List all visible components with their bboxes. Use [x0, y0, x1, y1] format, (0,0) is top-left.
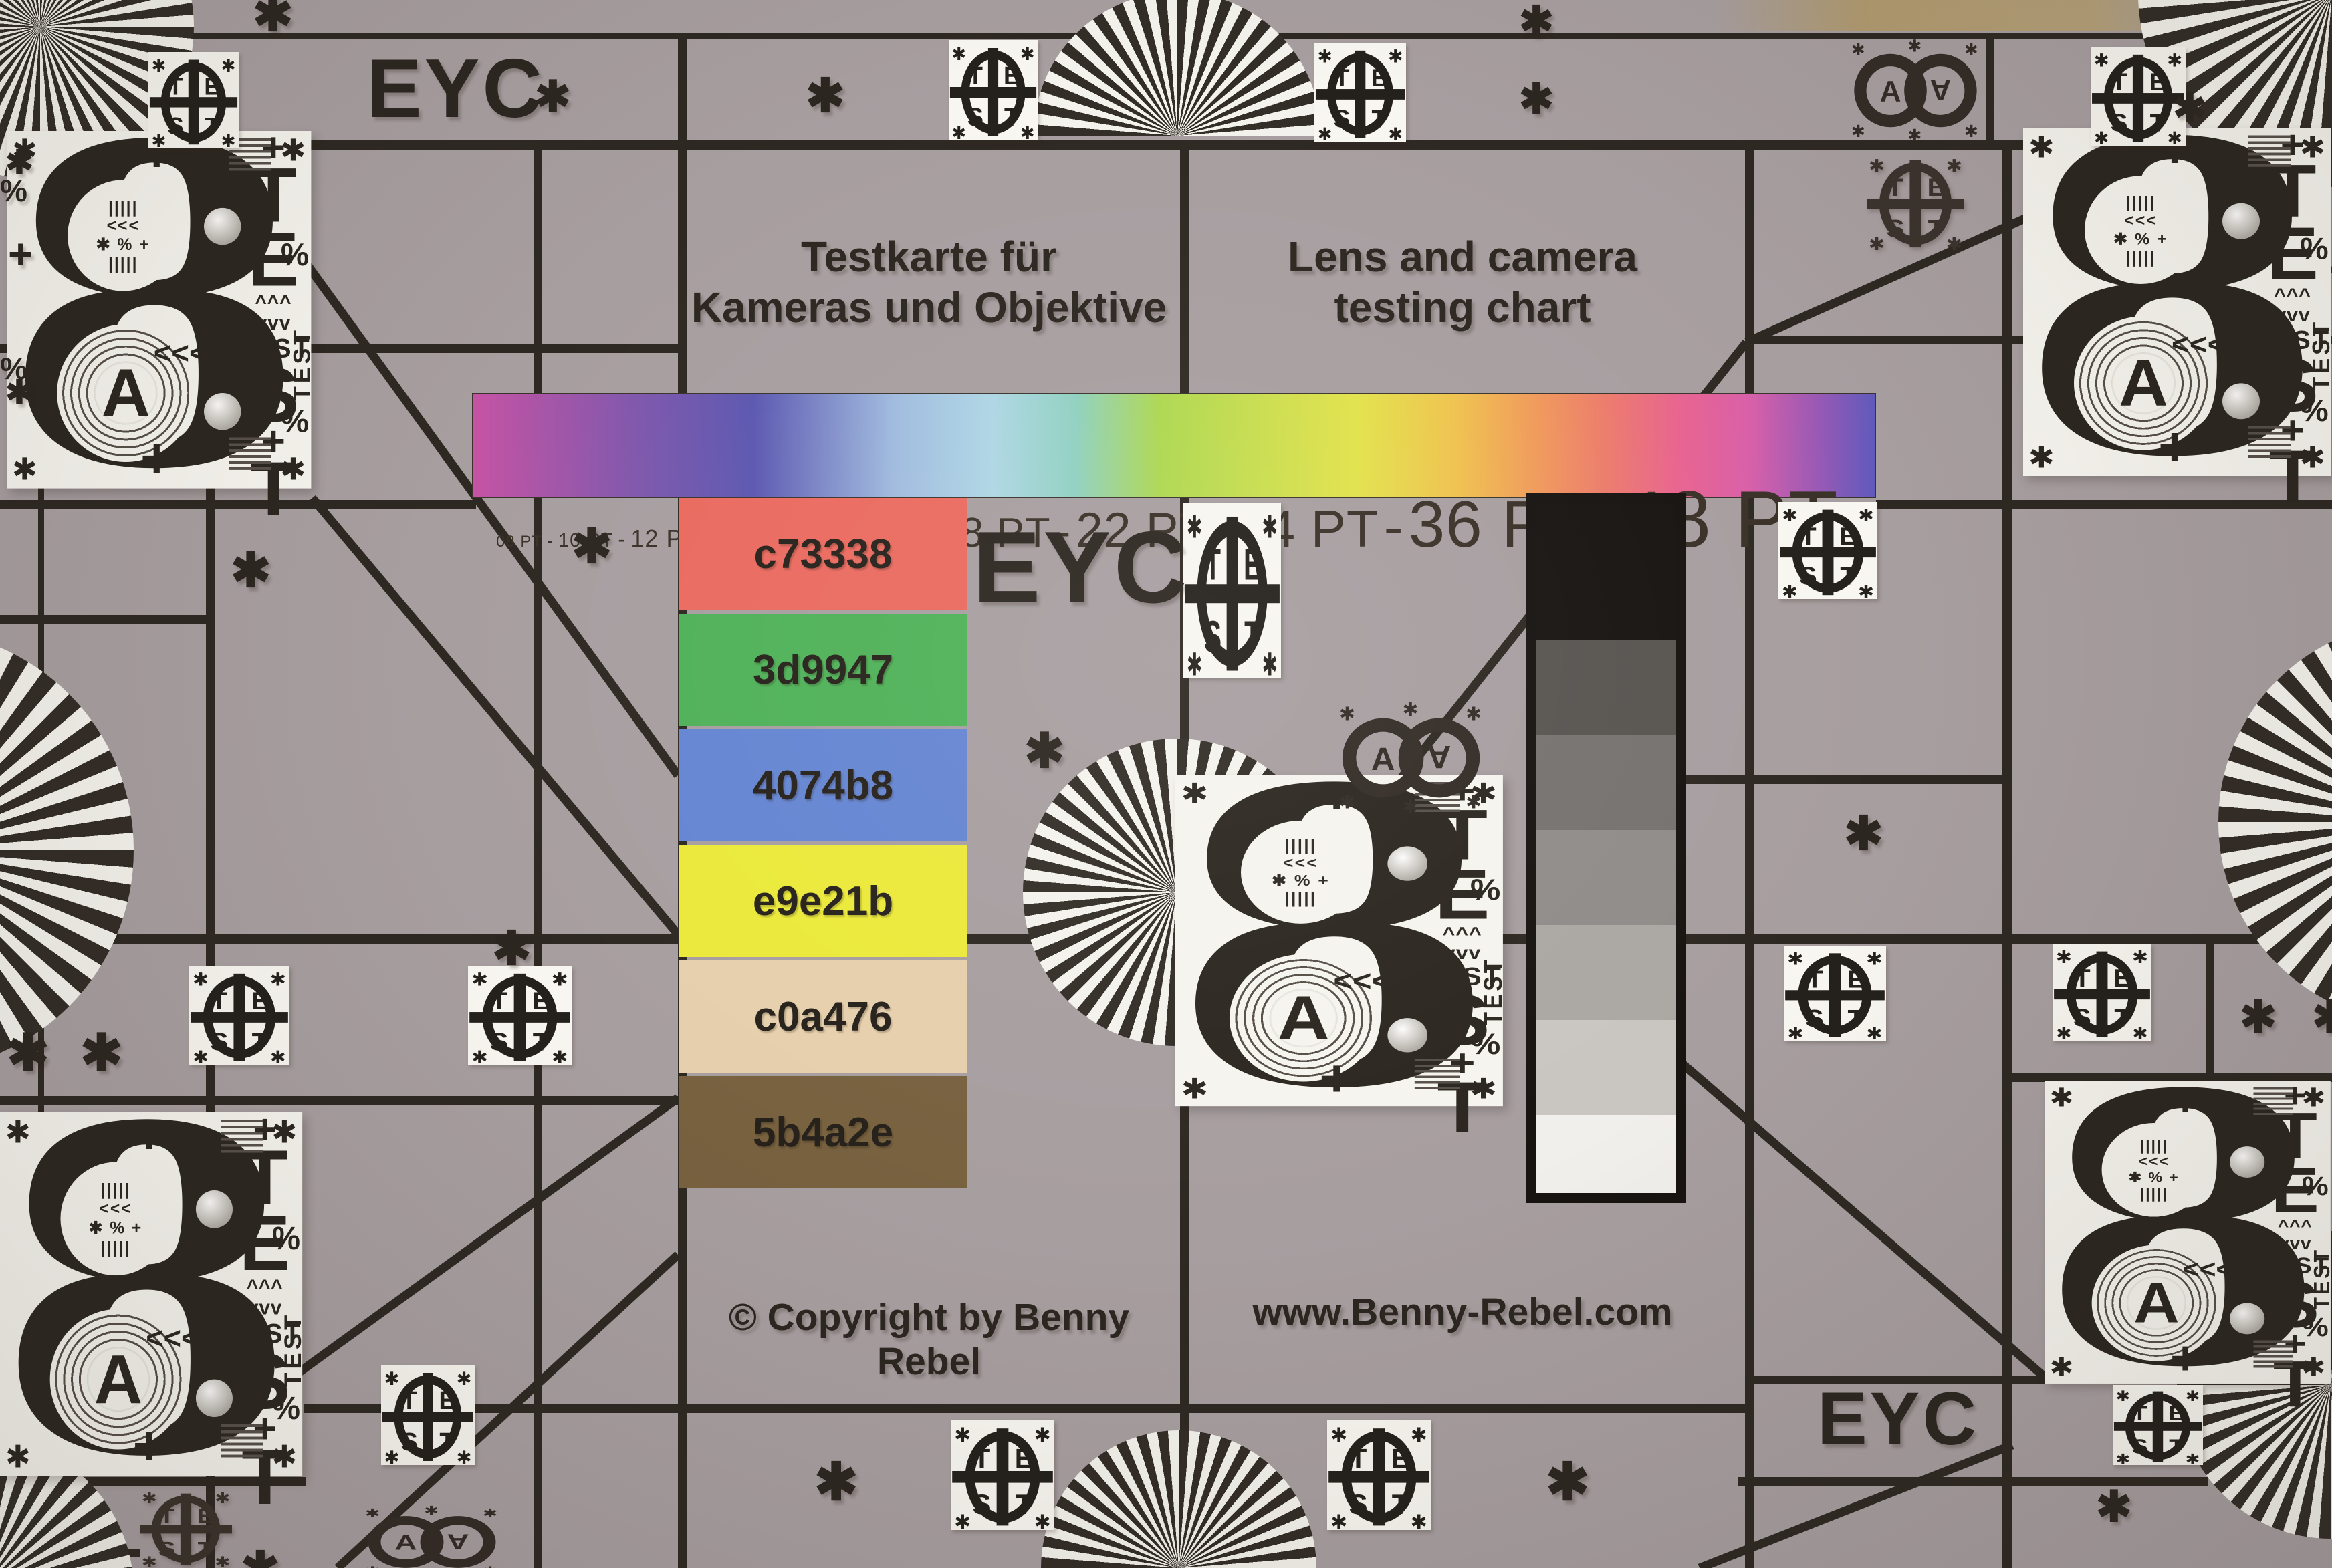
bar-pattern: [1415, 1059, 1460, 1089]
test-letter: S: [1886, 215, 1904, 243]
test-circle-marker: ✱ ✱ ✱ ✱ T E S T: [2091, 47, 2186, 146]
title-english-line2: testing chart: [1334, 283, 1591, 332]
bar-pattern: [229, 436, 271, 470]
asterisk-icon: ✱: [193, 1047, 209, 1065]
lens-test-chart-photo: 08 PT-10 PT-12 PT-14 PT-16 PT-18 PT-22 P…: [0, 0, 2332, 1568]
bar-pattern: [221, 1119, 263, 1152]
test-letter: S: [167, 112, 183, 140]
asterisk-icon: ✱: [951, 43, 965, 64]
asterisk-icon: ✱: [572, 523, 612, 571]
asterisk-icon: ✱: [231, 547, 271, 595]
eight-double-a-graphic: A A ✱ ✱ ✱ ✱ ✱ ✱: [1851, 39, 1979, 142]
asterisk-icon: ✱: [142, 1491, 157, 1507]
asterisk-icon: ✱: [2186, 1388, 2200, 1404]
test-letter: T: [1205, 540, 1221, 590]
test-circle-graphic: ✱ ✱ ✱ ✱ T E S T: [1865, 152, 1966, 251]
eight-double-a-graphic: A A ✱ ✱ ✱ ✱ ✱ ✱: [364, 1505, 498, 1568]
font-size-label: 08 PT: [496, 533, 542, 551]
asterisk-icon: ✱: [1020, 43, 1034, 64]
plus-icon: +: [2170, 1076, 2201, 1123]
color-patch-c73338: c73338: [679, 498, 967, 610]
asterisk-icon: ✱: [1330, 1511, 1347, 1530]
plus-icon: +: [2158, 419, 2191, 473]
sphere-detail: [2230, 1146, 2264, 1178]
grid-line-horizontal: [1681, 775, 2002, 784]
detail-bars: |||||: [2140, 1138, 2168, 1154]
asterisk-icon: ✱: [1782, 505, 1798, 525]
test-letter: T: [1806, 966, 1823, 993]
eight-test-card: ✱ ✱ ✱ ✱ 8 ||||| <<< ✱ % + ||||| A + T E …: [1175, 775, 1503, 1106]
test-letter: S: [1204, 612, 1221, 662]
title-english: Lens and camera testing chart: [1180, 231, 1745, 333]
asterisk-icon: ✱: [1519, 1, 1554, 43]
chevrons-left: <<<: [146, 1323, 199, 1353]
grayscale-step: [1536, 1115, 1676, 1193]
bar-pattern: [2253, 1087, 2293, 1115]
asterisk-icon: ✱: [1318, 124, 1332, 142]
a-letter: A: [2106, 347, 2181, 419]
grid-line-diagonal: [304, 261, 678, 775]
sphere-detail: [2222, 203, 2260, 239]
grid-line-vertical: [534, 140, 542, 1568]
test-letter: T: [1016, 1488, 1033, 1520]
test-letter: T: [973, 1443, 991, 1474]
percent-icon: %: [2302, 1314, 2329, 1341]
asterisk-icon: ✱: [1964, 41, 1978, 59]
asterisk-icon: ✱: [1844, 810, 1883, 857]
color-patch-4074b8: 4074b8: [679, 729, 967, 841]
asterisk-icon: ✱: [1787, 949, 1804, 968]
asterisk-icon: ✱: [384, 1448, 400, 1465]
test-circle-graphic: ✱ ✱ ✱ ✱ T E S T: [189, 966, 289, 1065]
color-patch-e9e21b: e9e21b: [679, 845, 967, 957]
asterisk-icon: ✱: [1388, 47, 1403, 67]
test-circle-marker: ✱ ✱ ✱ ✱ T E S T: [1314, 43, 1406, 142]
test-letter: S: [967, 102, 983, 131]
test-letter: S: [972, 1488, 991, 1520]
asterisk-icon: ✱: [471, 1047, 488, 1065]
test-letter: T: [1334, 63, 1350, 92]
test-letter: T: [1800, 523, 1817, 550]
test-circle-marker: ✱ ✱ ✱ ✱ T E S T: [1183, 503, 1281, 678]
resolution-detail-circle: ||||| <<< ✱ % + |||||: [2102, 1123, 2206, 1217]
asterisk-icon: ✱: [1908, 39, 1922, 55]
resolution-detail-circle: ||||| <<< ✱ % + |||||: [1241, 821, 1361, 924]
test-letter: S: [1334, 104, 1351, 132]
asterisk-icon: ✱: [1858, 505, 1874, 525]
eight-test-card: ✱ ✱ ✱ ✱ 8 ||||| <<< ✱ % + ||||| A + T E …: [2045, 1081, 2331, 1384]
test-letter: T: [211, 988, 228, 1015]
asterisk-icon: ✱: [2094, 128, 2109, 146]
test-circle-marker: ✱ ✱ ✱ ✱ T E S T: [468, 966, 572, 1065]
asterisk-icon: ✱: [1024, 727, 1064, 775]
test-letter: E: [1391, 1443, 1410, 1474]
a-letter: A: [1427, 739, 1451, 774]
asterisk-icon: ✱: [1034, 1511, 1051, 1530]
test-letter: T: [1244, 612, 1260, 662]
website-text: www.Benny-Rebel.com: [1180, 1290, 1745, 1334]
plus-icon: +: [8, 233, 33, 275]
test-circle-marker: ✱ ✱ ✱ ✱ T E S T: [1778, 502, 1877, 599]
asterisk-icon: ✱: [457, 1369, 472, 1389]
asterisk-icon: ✱: [1869, 234, 1885, 251]
asterisk-icon: ✱: [1330, 1424, 1347, 1446]
detail-chevrons: <<<: [107, 217, 140, 235]
detail-glyphs: ✱ % +: [2129, 1170, 2180, 1186]
detail-bars: |||||: [101, 1180, 130, 1199]
resolution-detail-circle: ||||| <<< ✱ % + |||||: [60, 1162, 170, 1276]
asterisk-icon: ✱: [2132, 1023, 2148, 1041]
asterisk-icon: ✱: [2312, 995, 2332, 1039]
grid-line-horizontal: [0, 140, 2332, 150]
test-tile-center: ✱ ✱ ✱ ✱ 8 ||||| <<< ✱ % + ||||| A + T E …: [1175, 775, 1483, 1136]
test-circle-graphic: ✱ ✱ ✱ ✱ T E S T: [2053, 944, 2151, 1041]
test-circle-graphic: ✱ ✱ ✱ ✱ T E S T: [138, 1487, 233, 1568]
test-letter: T: [1392, 1488, 1409, 1520]
test-circle-graphic: ✱ ✱ ✱ ✱ T E S T: [949, 40, 1038, 140]
detail-bars: |||||: [108, 197, 138, 216]
asterisk-icon: ✱: [270, 1047, 286, 1065]
font-size-separator: -: [547, 531, 554, 551]
eight-test-card: ✱ ✱ ✱ ✱ 8 ||||| <<< ✱ % + ||||| A + T E …: [2023, 128, 2331, 476]
asterisk-icon: ✱: [1858, 581, 1874, 599]
asterisk-icon: ✱: [954, 1424, 971, 1446]
detail-bars: |||||: [2126, 249, 2156, 267]
color-patch-label: c73338: [754, 531, 893, 578]
a-letter: A: [394, 1531, 417, 1555]
test-letter: T: [1004, 102, 1019, 131]
asterisk-icon: ✱: [384, 1369, 400, 1389]
test-circle-marker: ✱ ✱ ✱ ✱ T E S T: [951, 1420, 1054, 1530]
percent-icon: %: [2302, 1173, 2329, 1200]
test-letter: T: [1887, 174, 1904, 202]
asterisk-icon: ✱: [193, 970, 209, 990]
test-letter: E: [1244, 540, 1261, 590]
asterisk-icon: ✱: [483, 1564, 497, 1568]
test-letter: E: [2168, 1403, 2184, 1425]
test-letter: T: [2150, 110, 2166, 137]
test-letter: T: [968, 61, 983, 90]
test-circle-marker: ✱ ✱ ✱ ✱ T E S T: [189, 966, 289, 1065]
asterisk-icon: ✱: [1318, 47, 1332, 67]
percent-icon: %: [281, 239, 309, 271]
asterisk-icon: ✱: [1546, 1456, 1589, 1508]
test-circle-marker: ✱ ✱ ✱ ✱ T E S T: [1865, 152, 1966, 251]
asterisk-icon: ✱: [2186, 1451, 2200, 1465]
asterisk-icon: ✱: [471, 969, 488, 989]
detail-glyphs: ✱ % +: [89, 1218, 142, 1238]
asterisk-icon: ✱: [492, 925, 532, 972]
color-patch-label: 5b4a2e: [753, 1109, 893, 1156]
grid-line-horizontal: [0, 615, 207, 624]
detail-bars: |||||: [1284, 890, 1316, 907]
asterisk-icon: ✱: [1262, 648, 1278, 678]
asterisk-icon: ✱: [1262, 510, 1278, 545]
detail-chevrons: <<<: [100, 1199, 132, 1218]
resolution-detail-circle: ||||| <<< ✱ % + |||||: [68, 180, 179, 291]
test-circle-graphic: ✱ ✱ ✱ ✱ T E S T: [1778, 502, 1877, 599]
test-letter: T: [1928, 215, 1945, 243]
eyc-label-middle: EYC: [973, 509, 1190, 626]
test-letter: T: [2114, 1005, 2131, 1032]
test-word-vertical: TEST: [2309, 319, 2332, 391]
asterisk-icon: ✱: [483, 1507, 497, 1520]
test-circle-graphic: ✱ ✱ ✱ ✱ T E S T: [951, 1420, 1054, 1530]
asterisk-icon: ✱: [1411, 1511, 1427, 1530]
chevrons-left: <<<: [1333, 966, 1391, 995]
test-letter: T: [2132, 1403, 2147, 1425]
resolution-detail-circle: ||||| <<< ✱ % + |||||: [2085, 176, 2197, 284]
test-circle-graphic: ✱ ✱ ✱ ✱ T E S T: [2113, 1385, 2203, 1465]
test-letter: T: [198, 1538, 214, 1561]
bar-pattern: [2253, 1340, 2293, 1368]
chevrons-left: <<<: [2172, 329, 2226, 358]
asterisk-icon: ✱: [241, 1545, 280, 1568]
test-letter: E: [1004, 61, 1020, 90]
detail-glyphs: ✱ % +: [1272, 872, 1330, 890]
test-circle-graphic: ✱ ✱ ✱ ✱ T E S T: [2091, 47, 2186, 146]
asterisk-icon: ✱: [1339, 704, 1355, 725]
test-circle-graphic: ✱ ✱ ✱ ✱ T E S T: [1183, 503, 1281, 678]
test-word-vertical: TEST: [281, 1312, 305, 1388]
test-letter: E: [1371, 63, 1387, 92]
asterisk-icon: ✱: [1787, 1024, 1804, 1041]
grid-line-vertical: [1745, 140, 1754, 1568]
asterisk-icon: ✱: [365, 1564, 380, 1568]
bar-pattern: [2248, 135, 2291, 167]
test-circle-marker: ✱ ✱ ✱ ✱ T E S T: [949, 40, 1038, 140]
detail-chevrons: <<<: [1283, 855, 1318, 872]
eight-double-a-cluster: A A ✱ ✱ ✱ ✱ ✱ ✱: [364, 1505, 498, 1568]
sphere-detail: [204, 208, 241, 245]
test-letter: S: [158, 1538, 176, 1561]
asterisk-icon: ✱: [2094, 51, 2109, 71]
percent-icon: %: [272, 1222, 300, 1255]
asterisk-icon: ✱: [1519, 79, 1554, 120]
asterisk-icon: ✱: [1466, 704, 1481, 725]
asterisk-icon: ✱: [2132, 947, 2148, 967]
asterisk-icon: ✱: [2116, 1388, 2131, 1404]
asterisk-icon: ✱: [2173, 88, 2206, 128]
grayscale-step: [1536, 1020, 1676, 1115]
plus-icon: +: [133, 1105, 165, 1162]
test-letter: S: [1349, 1488, 1367, 1520]
asterisk-icon: ✱: [221, 131, 236, 148]
asterisk-icon: ✱: [552, 1047, 568, 1065]
a-letter: A: [1880, 76, 1901, 108]
eight-double-a-cluster: A A ✱ ✱ ✱ ✱ ✱ ✱: [1338, 702, 1482, 814]
test-letter: S: [1799, 563, 1817, 590]
test-letter: T: [1848, 1006, 1865, 1033]
test-circle-graphic: ✱ ✱ ✱ ✱ T E S T: [1327, 1420, 1431, 1530]
test-tile-top-right: ✱ ✱ ✱ ✱ 8 ||||| <<< ✱ % + ||||| A + T E …: [2023, 128, 2331, 489]
test-letter: E: [1015, 1443, 1034, 1474]
asterisk-icon: ✱: [2056, 947, 2072, 967]
test-circle-graphic: ✱ ✱ ✱ ✱ T E S T: [381, 1365, 475, 1465]
eight-test-card: ✱ ✱ ✱ ✱ 8 ||||| <<< ✱ % + ||||| A + T E …: [0, 1112, 302, 1476]
asterisk-icon: ✱: [365, 1507, 380, 1520]
test-letter: T: [2111, 69, 2127, 96]
asterisk-icon: ✱: [1946, 234, 1962, 251]
detail-glyphs: ✱ % +: [2113, 230, 2168, 249]
asterisk-icon: ✱: [1466, 792, 1481, 813]
test-letter: T: [1840, 563, 1857, 590]
color-patch-c0a476: c0a476: [679, 960, 967, 1073]
percent-icon: %: [0, 175, 27, 206]
test-letter: E: [2113, 964, 2131, 992]
asterisk-icon: ✱: [2167, 128, 2182, 146]
test-letter: T: [159, 1505, 175, 1527]
test-letter: T: [533, 1028, 550, 1055]
test-letter: T: [491, 987, 508, 1015]
asterisk-icon: ✱: [1851, 122, 1865, 141]
grayscale-step: [1536, 830, 1676, 925]
asterisk-icon: ✱: [215, 1491, 230, 1507]
asterisk-icon: ✱: [7, 1028, 49, 1079]
asterisk-icon: ✱: [2116, 1451, 2131, 1465]
a-letter: A: [1371, 741, 1395, 777]
asterisk-icon: ✱: [535, 75, 571, 118]
asterisk-icon: ✱: [1869, 156, 1885, 176]
test-circle-graphic: ✱ ✱ ✱ ✱ T E S T: [1784, 946, 1886, 1041]
eight-double-a-cluster: A A ✱ ✱ ✱ ✱ ✱ ✱: [1851, 39, 1979, 142]
test-letter: T: [2074, 964, 2091, 992]
test-circle-marker: ✱ ✱ ✱ ✱ T E S T: [1784, 946, 1886, 1041]
asterisk-icon: ✱: [1034, 1424, 1051, 1446]
plus-icon: +: [1319, 1052, 1354, 1103]
test-letter: S: [2131, 1436, 2147, 1458]
test-letter: T: [401, 1387, 417, 1415]
asterisk-icon: ✱: [424, 1505, 439, 1517]
color-patch-5b4a2e: 5b4a2e: [679, 1076, 967, 1188]
test-tile-top-left: ✱ ✱ ✱ ✱ 8 ||||| <<< ✱ % + ||||| A + T E …: [7, 131, 314, 492]
plus-icon: +: [2170, 1334, 2201, 1381]
grid-line-horizontal: [1738, 1477, 2208, 1486]
asterisk-icon: ✱: [2167, 51, 2182, 71]
test-letter: S: [1805, 1006, 1824, 1033]
a-letter: A: [2121, 1272, 2191, 1335]
asterisk-icon: ✱: [2056, 1023, 2072, 1041]
detail-bars: |||||: [101, 1238, 130, 1257]
test-circle-graphic: ✱ ✱ ✱ ✱ T E S T: [468, 966, 572, 1065]
sphere-detail: [196, 1190, 233, 1228]
chevrons-left: <<<: [2182, 1256, 2232, 1282]
test-circle-marker: ✱ ✱ ✱ ✱ T E S T: [2113, 1385, 2203, 1465]
color-patch-3d9947: 3d9947: [679, 614, 967, 726]
detail-chevrons: <<<: [2139, 1154, 2170, 1170]
asterisk-icon: ✱: [152, 55, 166, 76]
grid-line-vertical: [2002, 140, 2012, 1568]
percent-icon: %: [281, 406, 309, 438]
eight-test-card: ✱ ✱ ✱ ✱ 8 ||||| <<< ✱ % + ||||| A + T E …: [7, 131, 311, 489]
color-patch-column: c733383d99474074b8e9e21bc0a4765b4a2e: [679, 498, 967, 1192]
asterisk-icon: ✱: [1866, 1024, 1883, 1041]
asterisk-icon: ✱: [270, 970, 286, 990]
test-letter: T: [168, 72, 183, 100]
detail-bars: |||||: [2126, 193, 2156, 212]
a-letter: A: [89, 356, 163, 430]
asterisk-icon: ✱: [951, 122, 965, 140]
asterisk-icon: ✱: [552, 969, 568, 989]
eyc-label-top-left: EYC: [366, 41, 545, 136]
test-letter: T: [1350, 1443, 1367, 1474]
grid-line-diagonal: [312, 498, 678, 934]
detail-glyphs: ✱ % +: [96, 235, 150, 254]
asterisk-icon: ✱: [1964, 122, 1978, 141]
percent-icon: %: [2300, 234, 2329, 265]
detail-chevrons: <<<: [2124, 211, 2158, 230]
percent-icon: %: [0, 353, 27, 384]
grayscale-step-wedge: [1526, 493, 1686, 1203]
test-circle-marker: ✱ ✱ ✱ ✱ T E S T: [148, 52, 239, 148]
plus-icon: +: [133, 1417, 165, 1474]
font-size-separator: -: [618, 527, 626, 552]
a-letter: A: [447, 1529, 469, 1553]
test-letter: T: [1372, 104, 1387, 132]
title-german-line1: Testkarte für: [801, 233, 1057, 281]
test-word-vertical: TEST: [1480, 956, 1506, 1025]
sphere-detail: [2222, 383, 2260, 419]
asterisk-icon: ✱: [814, 1456, 858, 1508]
test-letter: T: [439, 1428, 455, 1456]
asterisk-icon: ✱: [2096, 1485, 2132, 1528]
grayscale-step: [1536, 640, 1676, 735]
test-letter: S: [2073, 1005, 2091, 1032]
asterisk-icon: ✱: [457, 1448, 472, 1465]
test-letter: E: [1847, 966, 1865, 993]
test-letter: E: [2149, 69, 2167, 96]
bar-pattern: [221, 1424, 263, 1457]
test-letter: E: [1839, 523, 1857, 550]
detail-bars: |||||: [2140, 1186, 2168, 1202]
font-size-separator: -: [1383, 493, 1403, 561]
detail-bars: |||||: [1284, 837, 1316, 854]
test-letter: E: [251, 988, 269, 1015]
color-patch-label: 4074b8: [753, 762, 893, 809]
a-letter: A: [1264, 984, 1343, 1053]
asterisk-icon: ✱: [1411, 1424, 1427, 1446]
detail-bars: |||||: [108, 255, 138, 273]
sphere-detail: [196, 1380, 233, 1418]
test-letter: E: [532, 987, 551, 1015]
font-size-gradient-bar: 08 PT-10 PT-12 PT-14 PT-16 PT-18 PT-22 P…: [472, 393, 1876, 498]
test-tile-bottom-left: ✱ ✱ ✱ ✱ 8 ||||| <<< ✱ % + ||||| A + T E …: [0, 1112, 308, 1473]
a-letter: A: [1930, 73, 1951, 106]
chevrons-left: <<<: [154, 338, 207, 368]
title-english-line1: Lens and camera: [1288, 233, 1637, 281]
asterisk-icon: ✱: [80, 1028, 123, 1079]
asterisk-icon: ✱: [142, 1555, 157, 1568]
test-letter: E: [197, 1505, 215, 1527]
asterisk-icon: ✱: [215, 1555, 230, 1568]
asterisk-icon: ✱: [1403, 796, 1418, 814]
asterisk-icon: ✱: [1782, 581, 1798, 599]
asterisk-icon: ✱: [221, 55, 236, 76]
asterisk-icon: ✱: [1187, 648, 1203, 678]
title-german-line2: Kameras und Objektive: [691, 283, 1167, 332]
percent-icon: %: [1470, 876, 1500, 905]
test-circle-marker: ✱ ✱ ✱ ✱ T E S T: [1327, 1420, 1431, 1530]
test-word-vertical: TEST: [290, 327, 314, 401]
test-circle-marker: ✱ ✱ ✱ ✱ T E S T: [381, 1365, 475, 1465]
grayscale-step: [1536, 925, 1676, 1020]
grid-line-horizontal: [304, 1404, 1746, 1413]
percent-icon: %: [1470, 1030, 1500, 1059]
asterisk-icon: ✱: [1946, 156, 1962, 176]
percent-icon: %: [2300, 396, 2329, 427]
sphere-detail: [2230, 1303, 2264, 1334]
asterisk-icon: ✱: [1388, 124, 1403, 142]
